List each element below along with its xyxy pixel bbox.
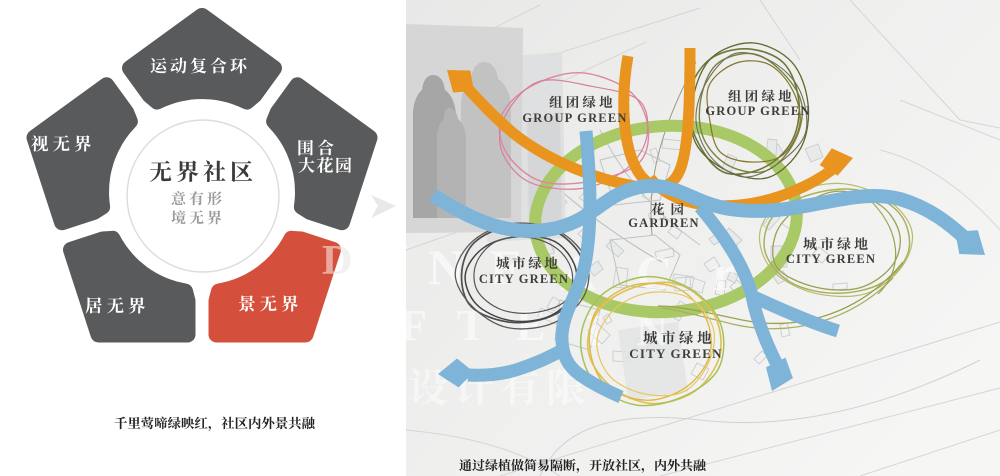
svg-text:GROUP GREEN: GROUP GREEN (522, 111, 627, 125)
svg-text:GROUP GREEN: GROUP GREEN (705, 104, 810, 118)
svg-text:D: D (322, 238, 352, 284)
svg-text:CITY GREEN: CITY GREEN (786, 252, 876, 266)
svg-text:GN: GN (352, 239, 409, 281)
svg-text:CITY GREEN: CITY GREEN (629, 346, 723, 361)
svg-text:FTE: FTE (400, 301, 576, 350)
svg-text:CITY GREEN: CITY GREEN (479, 272, 569, 286)
svg-text:GARDREN: GARDREN (628, 216, 700, 230)
